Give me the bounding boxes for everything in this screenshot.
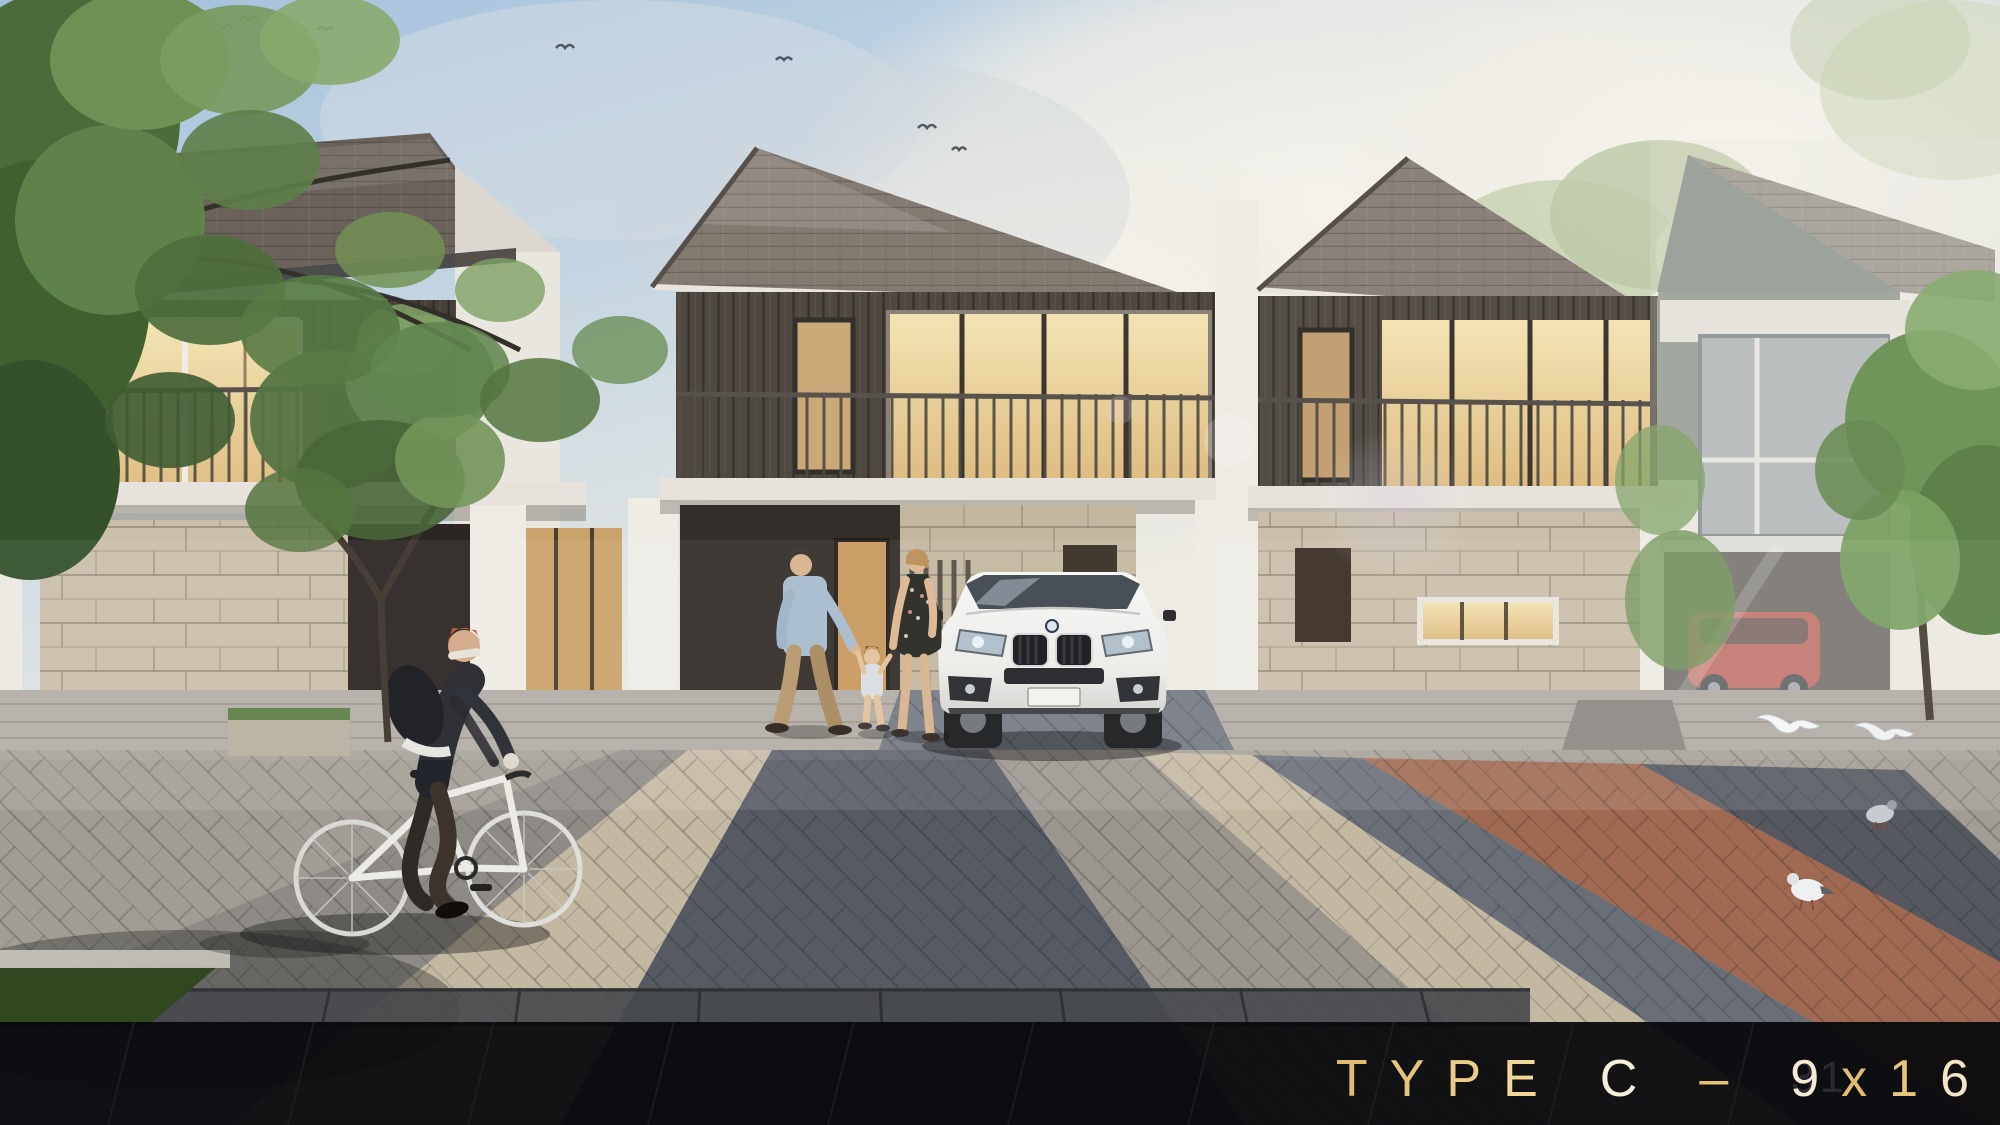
title-char: T xyxy=(1336,1049,1368,1109)
scene-canvas xyxy=(0,0,2000,1125)
carport-slab xyxy=(660,478,1240,502)
title-char: C xyxy=(1600,1049,1638,1109)
title-char: P xyxy=(1446,1049,1481,1109)
title-char: 6 xyxy=(1940,1049,1969,1109)
type-plate-title: TYPEC–9x16 xyxy=(1325,1049,1980,1109)
title-char: 1 xyxy=(1889,1049,1918,1109)
plank-paver-band xyxy=(0,988,1530,1026)
haze xyxy=(0,540,2000,760)
title-char: E xyxy=(1503,1049,1538,1109)
balcony-railing xyxy=(676,394,1215,490)
architectural-rendering: 31 TYPEC–9x16 xyxy=(0,0,2000,1125)
title-char: 9 xyxy=(1790,1049,1819,1109)
title-char: – xyxy=(1699,1049,1728,1109)
title-char: Y xyxy=(1390,1049,1425,1109)
title-char: x xyxy=(1841,1049,1867,1109)
